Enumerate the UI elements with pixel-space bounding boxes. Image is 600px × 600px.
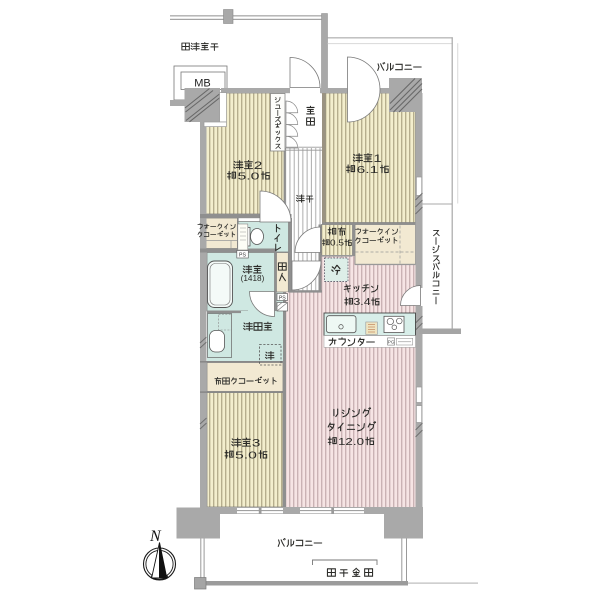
svg-text:6.1: 6.1 (357, 165, 379, 176)
svg-text:PS: PS (279, 295, 286, 301)
svg-text:PG: PG (388, 340, 395, 345)
svg-text:PS: PS (239, 253, 246, 259)
svg-text:5.0: 5.0 (238, 171, 260, 182)
svg-text:12.0: 12.0 (338, 437, 364, 448)
svg-text:3: 3 (252, 437, 261, 449)
svg-text:0.5: 0.5 (330, 238, 344, 248)
svg-text:1: 1 (373, 153, 382, 165)
svg-text:(1418): (1418) (241, 274, 265, 283)
svg-text:2: 2 (254, 160, 263, 172)
svg-text:5.0: 5.0 (235, 450, 257, 461)
svg-text:3.4: 3.4 (354, 297, 372, 308)
svg-text:MB: MB (194, 78, 211, 90)
svg-text:N: N (149, 528, 162, 545)
